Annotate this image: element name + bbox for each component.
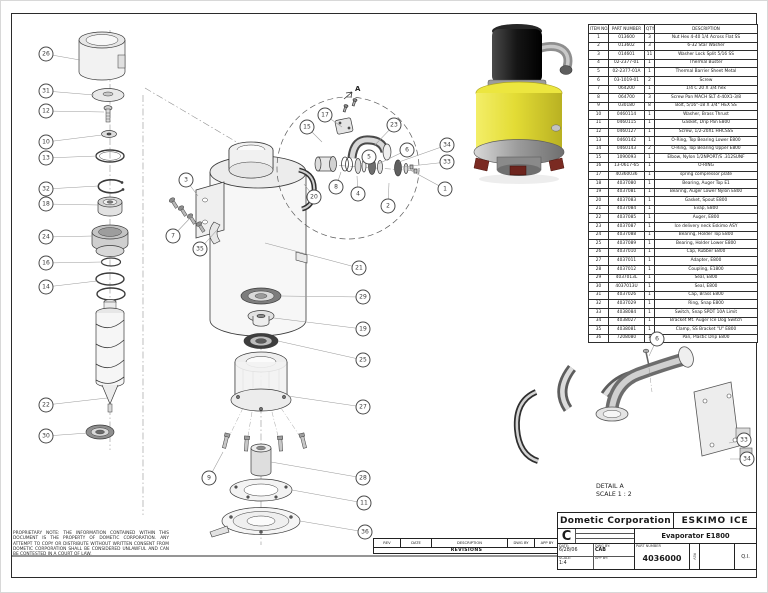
balloon-3: 3	[179, 173, 194, 188]
bom-row: 1304601421O-Ring, Top Bearing Lower E800	[589, 137, 758, 146]
bom-row: 2140370841Evap, E800	[589, 205, 758, 214]
bom-row: 1104601151Gasket, Drip Pan E800	[589, 119, 758, 128]
bom-row: 2740370111Adapter, E800	[589, 257, 758, 266]
bom-row: 10136003Nut Hex 4-40 1/4 Across Flat SS	[589, 34, 758, 43]
balloon-20: 20	[307, 190, 322, 205]
balloon-24: 24	[39, 230, 54, 245]
drawing-sheet: 2631121013321824161422303735202117152356…	[0, 0, 768, 593]
rev-col-description: DESCRIPTION	[432, 539, 508, 547]
bom-row: 1510900931Elbow, Nylon 1/2NPORT/S .312SU…	[589, 154, 758, 163]
bom-row: 201360236-32 Star Washer	[589, 42, 758, 51]
balloon-31: 31	[39, 84, 54, 99]
balloon-26: 26	[39, 47, 54, 62]
evaporator-tank	[196, 142, 314, 336]
bom-row: 90301808Bolt, 5/16"-18 X 3/4" HEX SS	[589, 102, 758, 111]
part-number: 4036000	[636, 548, 688, 568]
bom-row: 502-2377-01A1Thermal Barrier Sheet Metal	[589, 68, 758, 77]
detail-a-scale: SCALE 1 : 2	[596, 491, 632, 499]
revisions-title: REVISIONS	[374, 548, 559, 553]
bom-row: 2240370851Auger, E800	[589, 214, 758, 223]
detail-a-label: DETAIL A SCALE 1 : 2	[596, 483, 632, 499]
bom-header-desc: DESCRIPTION	[655, 25, 758, 34]
bom-row: 1404601432O-Ring, Top Bearing Upper E800	[589, 145, 758, 154]
balloon-7: 7	[166, 229, 181, 244]
balloon-6: 6	[650, 332, 665, 347]
bom-body: 10136003Nut Hex 4-40 1/4 Across Flat SS2…	[589, 34, 758, 343]
bom-row: 3540380811Clamp, SS Bracket "U" E800	[589, 326, 758, 335]
balloon-19: 19	[356, 322, 371, 337]
balloon-21: 21	[352, 261, 367, 276]
balloon-16: 16	[39, 256, 54, 271]
balloon-29: 29	[356, 290, 371, 305]
blank-cell	[700, 544, 735, 569]
balloon-28: 28	[356, 471, 371, 486]
bom-row: 1940370811Bearing, Auger Lower Nylon E80…	[589, 188, 758, 197]
bom-row: 80647003Screw Pan MACH SLT 4-40X1-3/8	[589, 94, 758, 103]
detail-a-view	[517, 345, 752, 461]
rendered-3d-view	[474, 24, 572, 184]
dwg-by-cell: DWG BY:CAB	[594, 544, 634, 557]
balloon-12: 12	[39, 104, 54, 119]
dwg-by-value: CAB	[595, 548, 633, 553]
detail-a-title: DETAIL A	[596, 483, 632, 491]
balloon-33: 33	[440, 155, 455, 170]
bom-row: 1840370801Bearing, Auger Top E1	[589, 180, 758, 189]
balloon-18: 18	[39, 197, 54, 212]
rev-col-rev: REV	[374, 539, 401, 547]
balloon-25: 25	[356, 353, 371, 368]
balloon-11: 11	[357, 496, 372, 511]
bom-row: 2440370881Bearing, Holder Top E800	[589, 231, 758, 240]
balloon-10: 10	[39, 135, 54, 150]
balloon-36: 36	[358, 525, 373, 540]
balloon-22: 22	[39, 398, 54, 413]
company-name: Dometic Corporation	[558, 513, 673, 528]
bom-row: 402-2377-011Thermal Buster	[589, 59, 758, 68]
qi-value: Q.I.	[735, 544, 756, 569]
balloon-8: 8	[329, 180, 344, 195]
balloon-4: 4	[351, 187, 366, 202]
bom-row: 3340380841Switch, Snap SPDT 10A Limit	[589, 309, 758, 318]
meta-grid: DATE:6/28/06 DWG BY:CAB SCALE:1:4 APP BY…	[558, 544, 635, 569]
detail-a-marker: A	[355, 85, 360, 93]
bom-row: 294037013L1Seal, E800	[589, 274, 758, 283]
bom-row: 2840370121Coupling, E1800	[589, 266, 758, 275]
balloon-34: 34	[740, 452, 755, 467]
part-number-cell: PART NUMBER 4036000	[635, 544, 690, 569]
bom-row: 3140370261Cap, Brass E800	[589, 291, 758, 300]
rev-col-dwgby: DWG BY	[508, 539, 535, 547]
bom-row: 301460111Washer Lock Split 5/16 SS	[589, 51, 758, 60]
bom-row: 1613-0617-651O-RING	[589, 162, 758, 171]
balloon-17: 17	[318, 108, 333, 123]
balloon-14: 14	[39, 280, 54, 295]
balloon-6: 6	[400, 143, 415, 158]
title-block: Dometic Corporation ESKIMO ICE C Evapora…	[557, 512, 757, 570]
balloon-33: 33	[737, 433, 752, 448]
balloon-23: 23	[387, 118, 402, 133]
date-cell: DATE:6/28/06	[558, 544, 594, 557]
revisions-table: REV DATE DESCRIPTION DWG BY APP BY REVIS…	[373, 538, 560, 554]
bom-row: 3240370291Ring, Snap E800	[589, 300, 758, 309]
size-subrows	[575, 529, 634, 543]
balloon-15: 15	[300, 120, 315, 135]
sheet-size-box: C	[558, 529, 635, 543]
balloon-1: 1	[438, 182, 453, 197]
bom-row: 603-1019-012Screw	[589, 76, 758, 85]
balloon-34: 34	[440, 138, 455, 153]
bom-row: 17403600361spring compressor plate	[589, 171, 758, 180]
rev-col-date: DATE	[401, 539, 432, 547]
scale-value: 1:4	[559, 561, 592, 566]
bom-row: 3672080801Pan, Plastic Drip E800	[589, 334, 758, 343]
product-name: ESKIMO ICE	[673, 513, 756, 528]
balloon-32: 32	[39, 182, 54, 197]
bom-header-row: ITEM NO. PART NUMBER QTY. DESCRIPTION	[589, 25, 758, 34]
bom-row: 3440380271Bracket Mt. Auger Ice Dog Swit…	[589, 317, 758, 326]
scale-cell: SCALE:1:4	[558, 557, 594, 570]
revisions-header-row: REV DATE DESCRIPTION DWG BY APP BY	[374, 539, 559, 548]
bom-row: 1204601271Screw, 1/2-20X1 HHCSSS	[589, 128, 758, 137]
bom-row: 2040370831Gasket, Spout E800	[589, 197, 758, 206]
date-value: 6/28/06	[559, 548, 592, 553]
sheet-size: C	[558, 529, 575, 543]
balloon-30: 30	[39, 429, 54, 444]
balloon-5: 5	[362, 150, 377, 165]
proprietary-note: PROPRIETARY NOTE: THE INFORMATION CONTAI…	[13, 531, 169, 558]
drawing-title: Evaporator E1800	[635, 529, 756, 543]
bom-header-part: PART NUMBER	[609, 25, 645, 34]
left-exploded-column	[79, 32, 128, 439]
bom-row: 1004601141Washer, Brass Thrust	[589, 111, 758, 120]
balloon-27: 27	[356, 400, 371, 415]
bom-row: 304037013U1Seal, E800	[589, 283, 758, 292]
balloon-35: 35	[193, 242, 208, 257]
rev-cell: REV	[690, 544, 700, 569]
bom-row: 2640370101Cap, Rubber E800	[589, 248, 758, 257]
balloon-9: 9	[202, 471, 217, 486]
bom-header-qty: QTY.	[645, 25, 655, 34]
bom-row: 706420011/4 C 20 X 3/4 hex	[589, 85, 758, 94]
balloon-13: 13	[39, 151, 54, 166]
bom-row: 2340370871Ice delivery neck Eskimo ASY	[589, 223, 758, 232]
bom-table: ITEM NO. PART NUMBER QTY. DESCRIPTION 10…	[588, 24, 758, 343]
bom-row: 2540370891Bearing, Holder Lower E800	[589, 240, 758, 249]
app-by-cell: APP BY:	[594, 557, 634, 570]
rev-col-appby: APP BY	[535, 539, 559, 547]
bom-header-item: ITEM NO.	[589, 25, 609, 34]
balloon-2: 2	[381, 199, 396, 214]
